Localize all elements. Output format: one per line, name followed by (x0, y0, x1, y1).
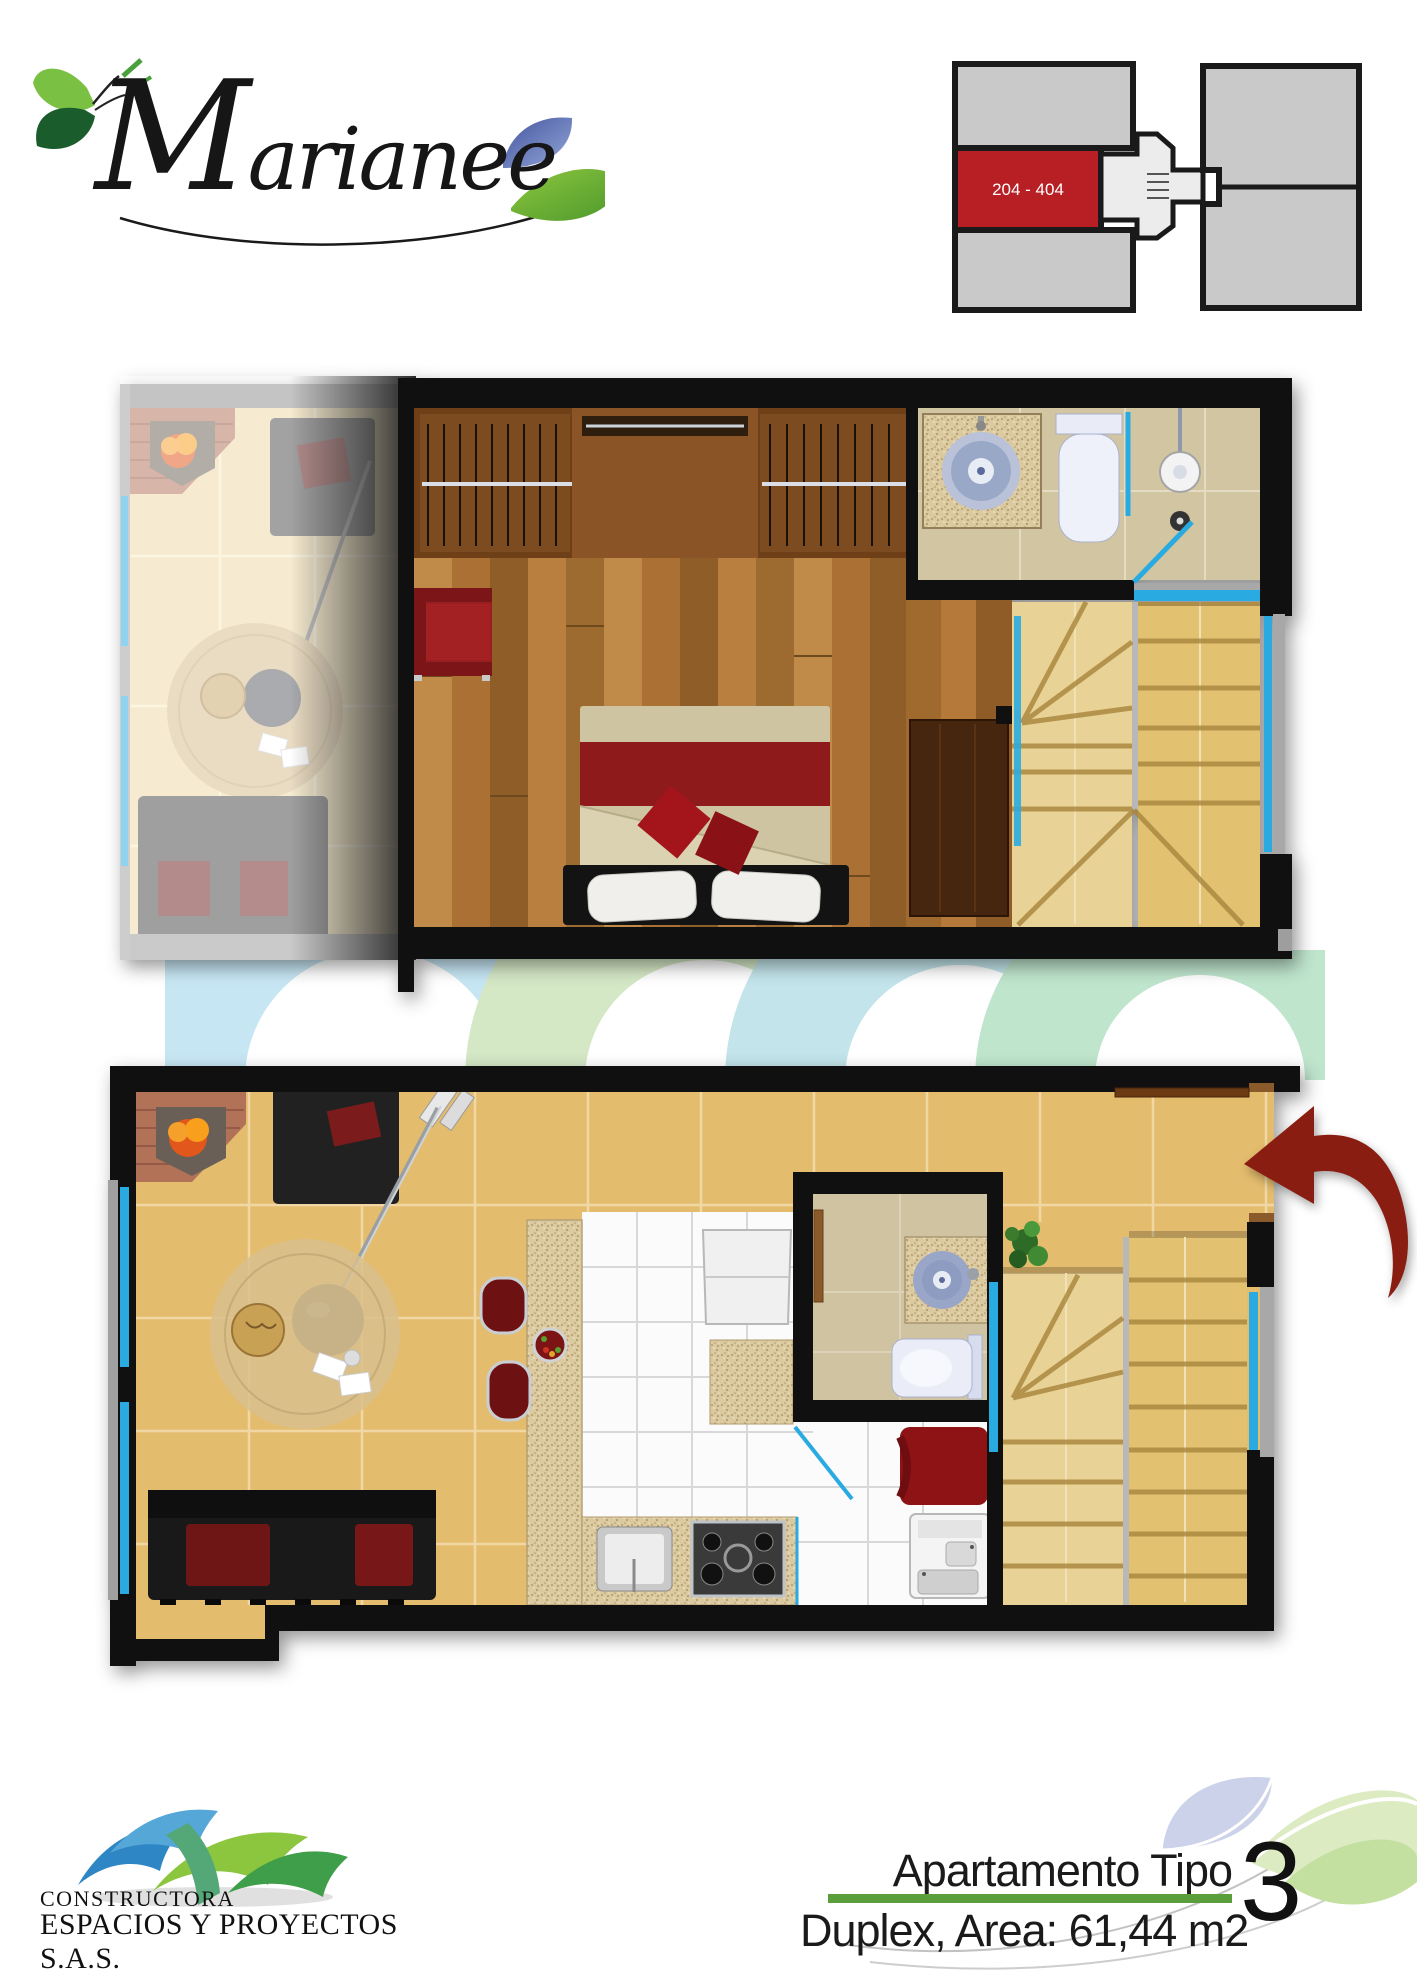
window-right (1249, 1292, 1258, 1450)
living-room-faded (120, 376, 416, 960)
washer (910, 1514, 990, 1598)
flyer-page: Marianee 204 - 404 (0, 0, 1417, 1984)
marianee-logo: Marianee (25, 50, 605, 280)
vanity-sink (923, 414, 1041, 528)
counter-sink-stove (582, 1517, 797, 1605)
bath-door (814, 1210, 823, 1302)
entry-arrow (1238, 1098, 1417, 1308)
apartment-type-label: Apartamento Tipo (800, 1845, 1232, 1897)
sofa-black (148, 1490, 436, 1605)
armchair-black (273, 1076, 399, 1204)
constructora-logo: CONSTRUCTORA ESPACIOS Y PROYECTOS S.A.S. (28, 1788, 468, 1968)
upper-floor-plan (120, 376, 1292, 994)
brand-name: Marianee (95, 78, 555, 219)
loveseat-red (410, 588, 492, 681)
closet (414, 408, 906, 558)
bathroom-lower (813, 1194, 990, 1400)
bathroom-upper (918, 408, 1260, 580)
apartment-area-label: Duplex, Area: 61,44 m2 (800, 1905, 1232, 1957)
toilet (892, 1335, 982, 1399)
bed (563, 706, 849, 925)
lower-floor-plan (100, 1062, 1310, 1702)
stair-window (1264, 616, 1272, 852)
apartment-info: Apartamento Tipo Duplex, Area: 61,44 m2 … (780, 1764, 1417, 1984)
entry-arrow-icon (1244, 1106, 1408, 1298)
cabinet-dark (910, 720, 1008, 916)
window-left-1 (120, 1187, 129, 1367)
key-plan: 204 - 404 (951, 58, 1363, 316)
apartment-type-number: 3 (1240, 1826, 1302, 1938)
key-plan-right-block (1203, 66, 1359, 308)
rug-and-table (210, 1239, 400, 1429)
landing-glass (1134, 590, 1260, 601)
unit-range-label: 204 - 404 (992, 180, 1064, 199)
company-name-line2: ESPACIOS Y PROYECTOS S.A.S. (40, 1908, 468, 1976)
fridge (703, 1230, 791, 1324)
stairs-lower (1003, 1231, 1247, 1605)
green-divider (828, 1894, 1232, 1903)
balcony-notch (136, 1605, 265, 1639)
window-left-2 (120, 1402, 129, 1594)
toilet (1056, 414, 1122, 542)
laundry-basket-red (900, 1427, 988, 1505)
bar-counter (527, 1220, 582, 1605)
stairs-upper (1012, 602, 1260, 927)
vanity-sink (905, 1237, 990, 1323)
island (710, 1340, 793, 1424)
stair-glass (989, 1282, 998, 1452)
